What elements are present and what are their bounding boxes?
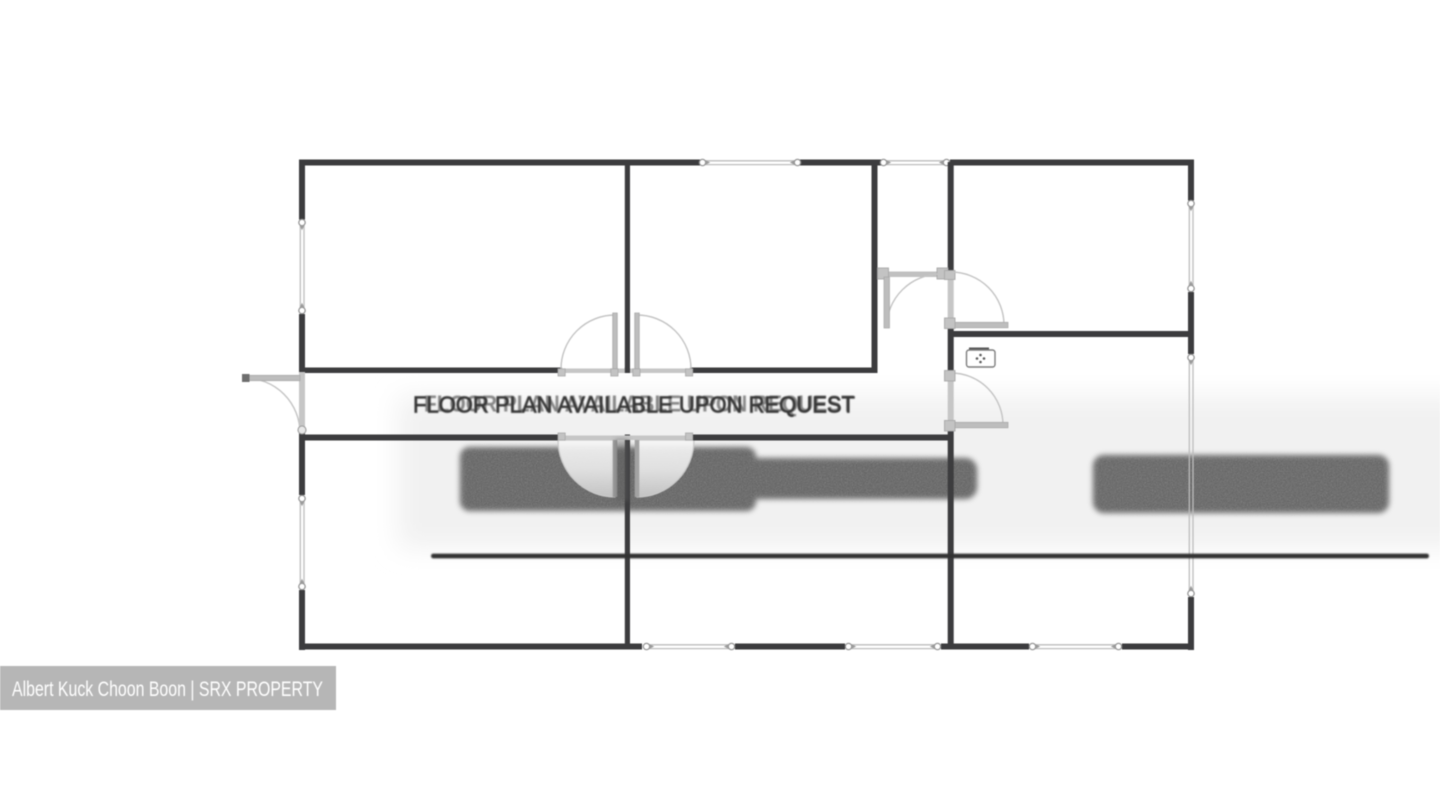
svg-text:FLOOR PLAN AVAILABLE UPON REQU: FLOOR PLAN AVAILABLE UPON REQUEST: [413, 392, 855, 418]
svg-text:Albert Kuck Choon Boon | SRX P: Albert Kuck Choon Boon | SRX PROPERTY: [12, 677, 323, 701]
